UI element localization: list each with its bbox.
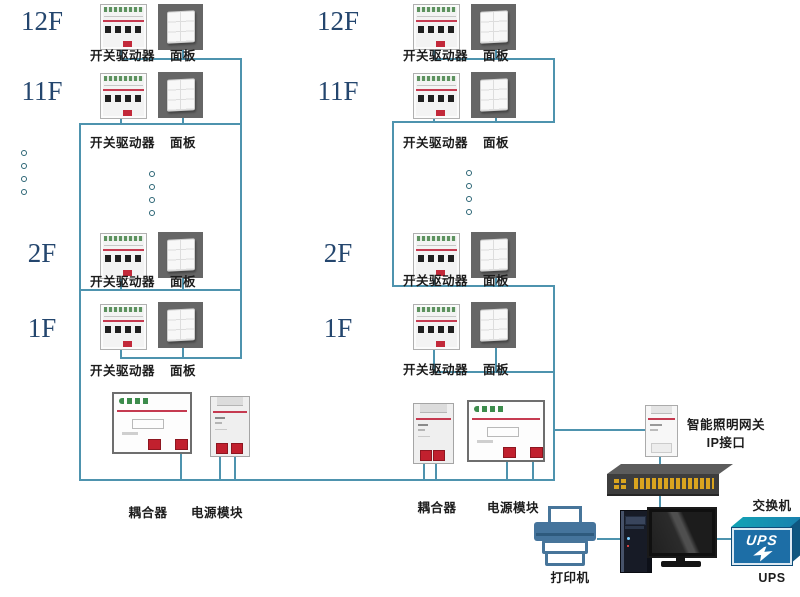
driver-label: 开关驱动器: [403, 363, 467, 378]
ellipsis-dot: [466, 183, 472, 189]
floor-label: 2F: [314, 238, 362, 269]
printer-device: [534, 506, 598, 568]
network-switch-device: [607, 474, 719, 496]
gateway-label-line2: IP接口: [674, 436, 778, 451]
floor-label: 11F: [18, 76, 66, 107]
switch-driver-device: [100, 4, 147, 50]
ups-label: UPS: [740, 571, 800, 586]
wire: [532, 462, 534, 479]
driver-label: 开关驱动器: [403, 49, 467, 64]
wire: [553, 58, 555, 123]
driver-label: 开关驱动器: [90, 136, 154, 151]
panel-device: [158, 4, 203, 50]
ellipsis-dot: [149, 197, 155, 203]
network-switch-top: [607, 464, 733, 474]
power-module-device: [467, 400, 545, 462]
switch-driver-device: [100, 233, 147, 279]
ups-box-text: UPS: [731, 532, 793, 548]
switch-driver-device: [100, 304, 147, 350]
ellipsis-dot: [149, 171, 155, 177]
panel-device: [471, 72, 516, 118]
floor-label: 12F: [314, 6, 362, 37]
wire: [392, 121, 394, 287]
switch-driver-device: [100, 73, 147, 119]
printer-label: 打印机: [538, 571, 602, 586]
coupler-label: 耦合器: [122, 506, 174, 521]
wire: [182, 118, 184, 123]
panel-label: 面板: [165, 364, 201, 379]
wire: [240, 58, 242, 359]
wire: [180, 454, 182, 479]
wire: [234, 455, 236, 479]
driver-label: 开关驱动器: [403, 136, 467, 151]
coupler-device: [413, 403, 454, 464]
power-module-label: 电源模块: [188, 506, 246, 521]
driver-label: 开关驱动器: [90, 49, 154, 64]
power-module-device: [210, 396, 250, 457]
coupler-device: [112, 392, 192, 454]
wire: [553, 285, 555, 481]
lightning-bolt-icon: [752, 546, 774, 563]
monitor-base: [661, 561, 701, 567]
panel-device: [471, 232, 516, 278]
monitor-device: [647, 507, 717, 558]
ellipsis-dot: [21, 150, 27, 156]
panel-device: [158, 232, 203, 278]
ups-device-top: [731, 517, 800, 527]
panel-device: [158, 302, 203, 348]
switch-driver-device: [413, 304, 460, 350]
ellipsis-dot: [149, 210, 155, 216]
wire: [659, 494, 661, 508]
floor-label: 1F: [18, 313, 66, 344]
floor-label: 12F: [18, 6, 66, 37]
ellipsis-dot: [466, 196, 472, 202]
switch-driver-device: [413, 73, 460, 119]
monitor-screen: [652, 512, 712, 553]
wire: [120, 357, 242, 359]
wire: [495, 118, 497, 122]
panel-label: 面板: [478, 363, 514, 378]
network-switch-label: 交换机: [740, 499, 800, 514]
wire: [79, 479, 555, 481]
wire: [506, 462, 508, 479]
ellipsis-dot: [466, 209, 472, 215]
wire: [435, 462, 437, 479]
driver-label: 开关驱动器: [90, 364, 154, 379]
ellipsis-dot: [21, 189, 27, 195]
ellipsis-dot: [21, 163, 27, 169]
floor-label: 11F: [314, 76, 362, 107]
wire: [553, 429, 646, 431]
switch-driver-device: [413, 4, 460, 50]
switch-ports: [634, 478, 714, 489]
driver-label: 开关驱动器: [90, 275, 154, 290]
switch-driver-device: [413, 233, 460, 279]
driver-label: 开关驱动器: [403, 274, 467, 289]
panel-label: 面板: [165, 275, 201, 290]
panel-label: 面板: [478, 49, 514, 64]
wire: [79, 123, 81, 481]
ellipsis-dot: [149, 184, 155, 190]
ellipsis-dot: [466, 170, 472, 176]
wire: [392, 121, 555, 123]
panel-device: [471, 302, 516, 348]
wire: [79, 123, 242, 125]
coupler-label: 耦合器: [411, 501, 463, 516]
wire: [423, 462, 425, 479]
ups-device: UPS: [731, 527, 793, 566]
floor-label: 2F: [18, 238, 66, 269]
panel-device: [158, 72, 203, 118]
ellipsis-dot: [21, 176, 27, 182]
switch-uplink-ports: [614, 479, 628, 489]
panel-label: 面板: [478, 274, 514, 289]
wire: [182, 348, 184, 357]
panel-label: 面板: [165, 136, 201, 151]
panel-label: 面板: [165, 49, 201, 64]
gateway-label-line1: 智能照明网关: [674, 418, 778, 433]
panel-label: 面板: [478, 136, 514, 151]
floor-label: 1F: [314, 313, 362, 344]
panel-device: [471, 4, 516, 50]
lighting-system-diagram: 12F 11F 2F 1F 开关驱动器 面板 开关驱动器 面板 开关驱动器 面板…: [0, 0, 800, 597]
wire: [219, 455, 221, 479]
wire: [597, 538, 620, 540]
